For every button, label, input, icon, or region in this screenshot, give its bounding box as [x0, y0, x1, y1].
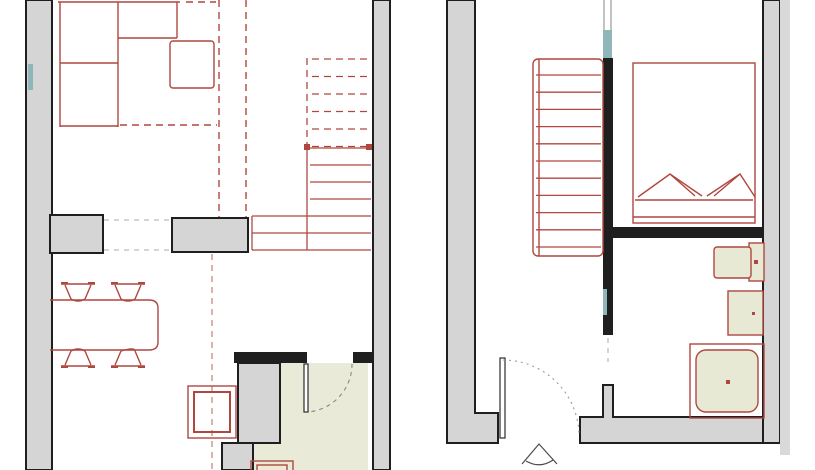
corner-sofa — [58, 2, 216, 127]
bathroom-lower — [222, 352, 373, 470]
entrance-door-leaf — [500, 358, 505, 438]
pillow — [707, 174, 755, 197]
bathroom-wall-left — [238, 363, 280, 443]
double-bed — [633, 63, 755, 223]
dining-chair — [111, 283, 145, 301]
bathroom-wall — [353, 352, 373, 363]
right-exterior-wall — [763, 0, 780, 443]
bathroom-door-leaf — [304, 364, 308, 412]
wash-basin — [728, 291, 763, 335]
dining-chair — [61, 349, 95, 367]
left-exterior-wall — [447, 0, 498, 443]
wall-stub — [50, 215, 103, 253]
glass-panel-small — [603, 289, 607, 315]
toilet — [714, 247, 751, 278]
shower-drain — [726, 380, 730, 384]
mid-wall-block — [172, 218, 248, 252]
basin-dot — [752, 312, 755, 315]
bedroom-bathroom-wall — [613, 227, 763, 238]
staircase-lower-floor — [252, 58, 372, 250]
party-wall — [373, 0, 390, 470]
pillow-fold — [670, 174, 740, 196]
bathroom-upper — [690, 243, 764, 418]
dining-table — [50, 300, 158, 350]
entry-arrow — [522, 444, 557, 465]
bathroom-wall — [234, 352, 307, 363]
wall-shadow — [780, 0, 790, 455]
opening-jambs — [604, 0, 611, 30]
stair-newel — [366, 144, 372, 150]
stair-treads-wide — [252, 216, 371, 233]
floor-plan-canvas — [0, 0, 815, 470]
left-plan — [26, 0, 390, 470]
dining-chair — [111, 349, 145, 367]
coffee-table — [170, 41, 214, 88]
stair-treads — [310, 165, 371, 199]
dining-chair — [61, 283, 95, 301]
staircase-upper-floor — [533, 59, 603, 256]
glass-panel — [603, 30, 612, 58]
stair-treads-dashed — [312, 59, 370, 147]
stair-treads — [536, 75, 601, 247]
window-glass — [28, 64, 33, 90]
bathroom-wall-step — [222, 443, 253, 470]
entrance-door-swing — [503, 360, 579, 436]
stair-newel — [304, 144, 310, 150]
floor-plan-drawing — [0, 0, 815, 470]
toilet-dot — [754, 260, 758, 264]
right-plan — [447, 0, 790, 465]
